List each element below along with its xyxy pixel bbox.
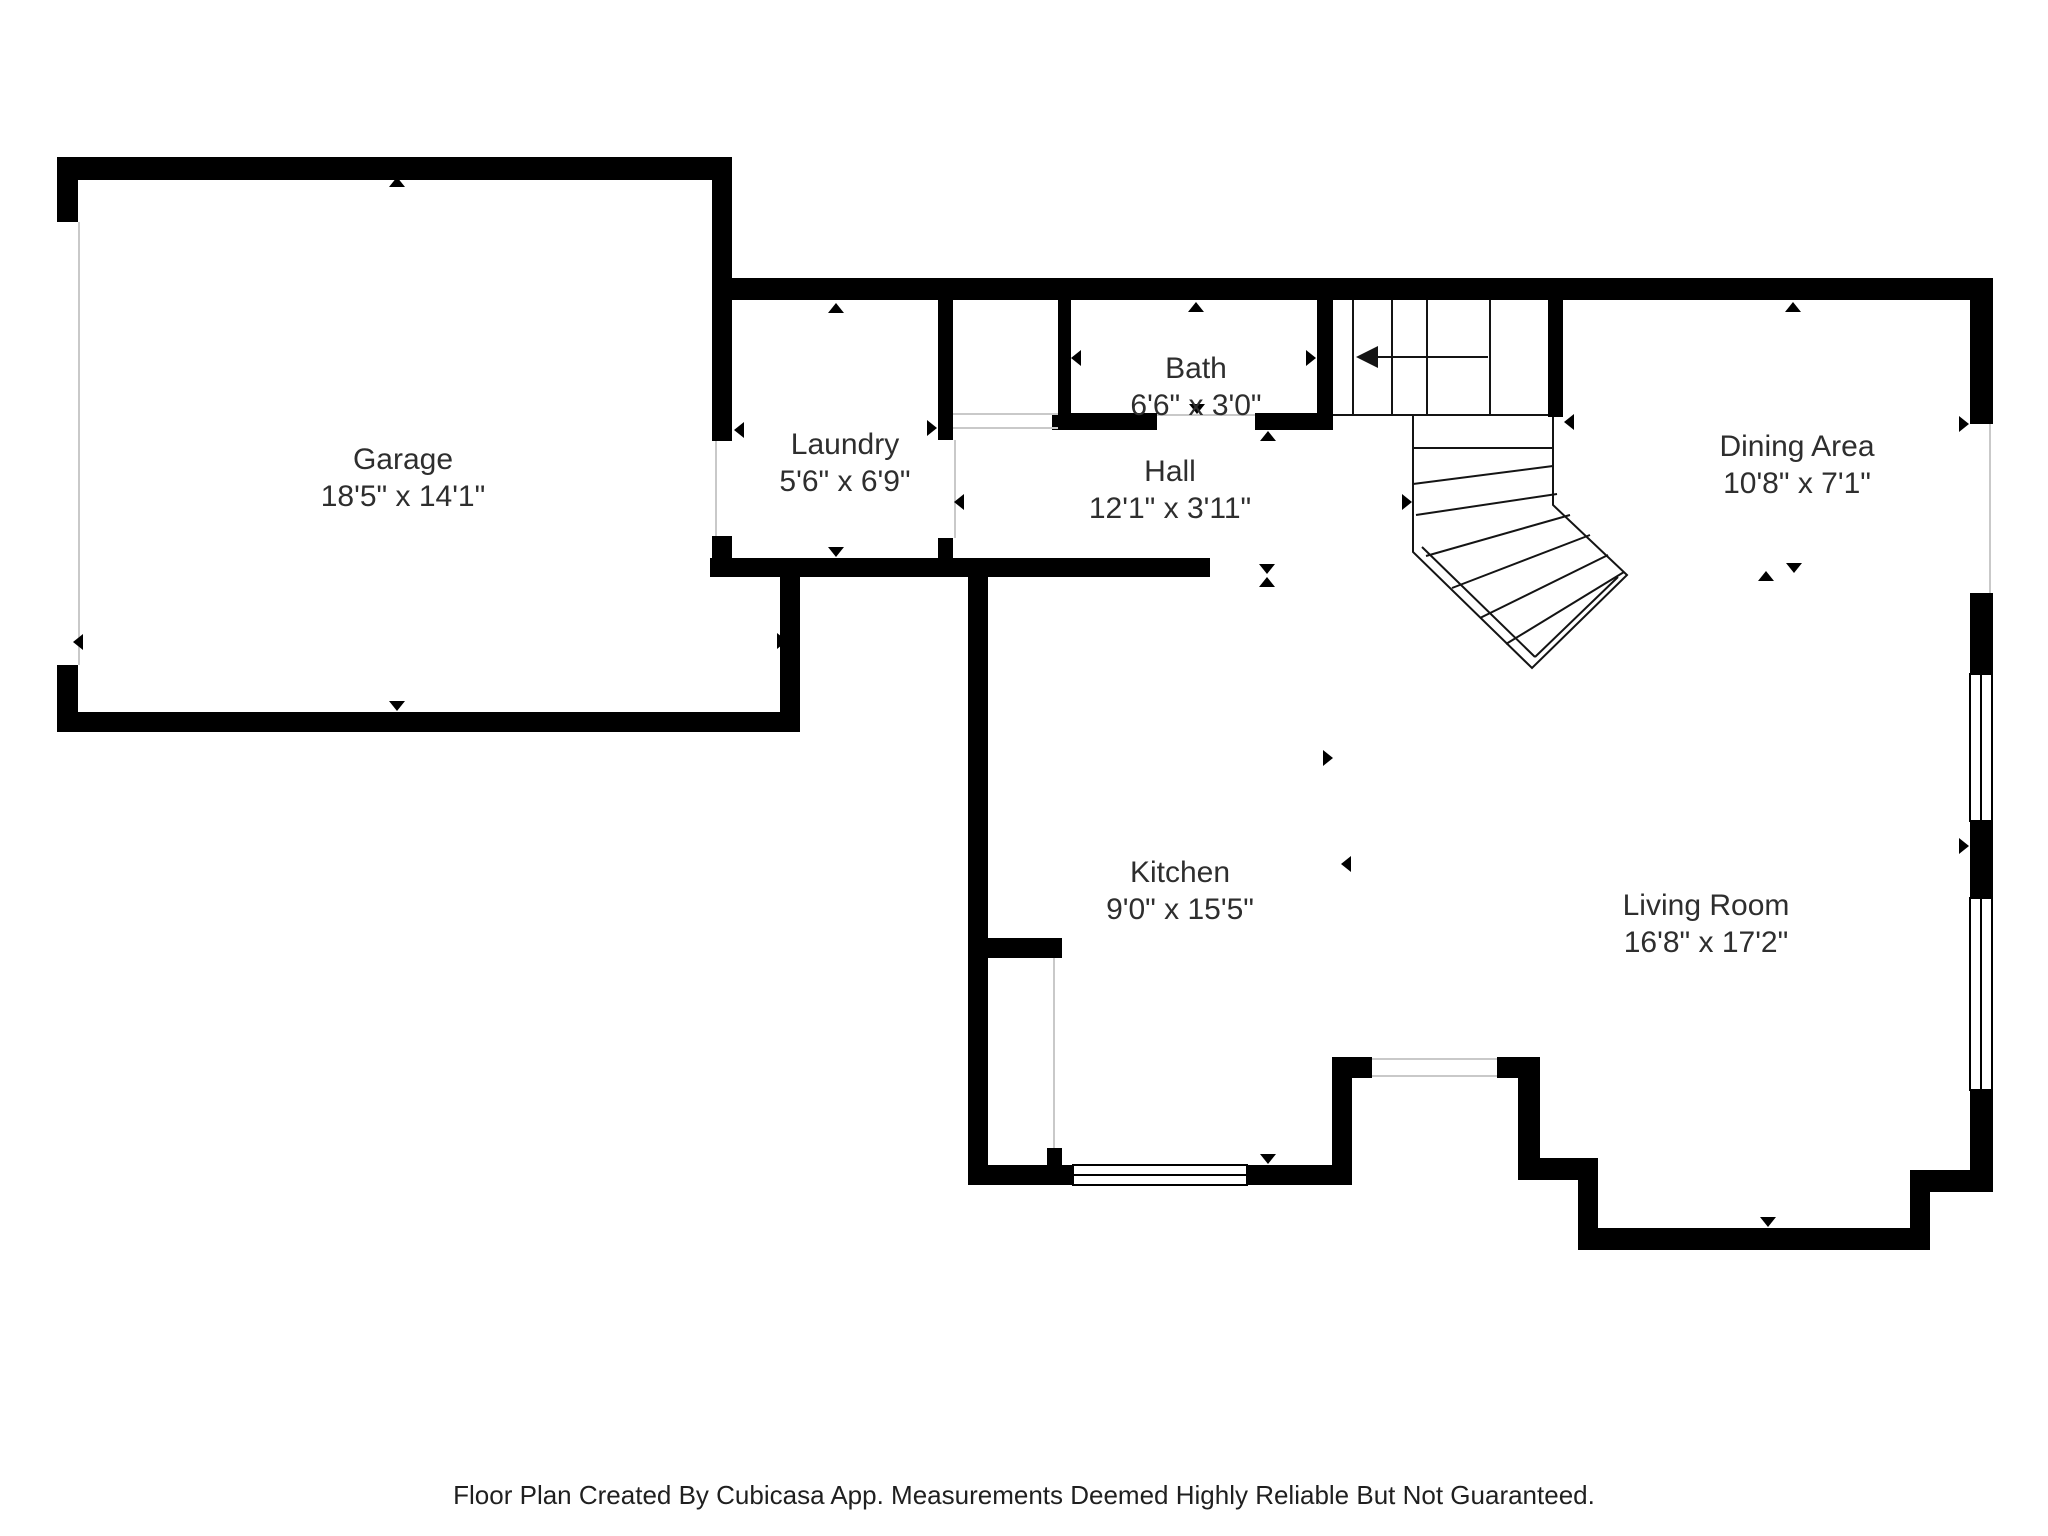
dimension-arrow-icon <box>1260 1154 1276 1164</box>
room-label-garage: Garage 18'5" x 14'1" <box>321 441 486 515</box>
room-name: Laundry <box>791 428 899 461</box>
window-living-right-lower-icon <box>1970 898 1992 1090</box>
wall-kitchen-nook-top <box>988 938 1062 958</box>
dimension-arrow-icon <box>1188 302 1204 312</box>
walls <box>57 157 1993 1250</box>
room-name: Kitchen <box>1130 856 1230 889</box>
dimension-arrow-icon <box>1959 416 1969 432</box>
wall-right-top <box>1970 278 1993 424</box>
room-name: Hall <box>1144 455 1196 488</box>
room-name: Bath <box>1165 352 1227 385</box>
dimension-arrow-icon <box>828 547 844 557</box>
dimension-markers <box>73 177 1969 1227</box>
footer-disclaimer: Floor Plan Created By Cubicasa App. Meas… <box>0 1480 2048 1511</box>
staircase-icon <box>1333 300 1627 668</box>
dimension-arrow-icon <box>1306 350 1316 366</box>
room-label-living-room: Living Room 16'8" x 17'2" <box>1623 887 1790 961</box>
dimension-arrow-icon <box>1758 571 1774 581</box>
dimension-arrow-icon <box>1564 414 1574 430</box>
wall-garage-left-upper-stub <box>57 157 78 222</box>
dimension-arrow-icon <box>1785 302 1801 312</box>
dimension-arrow-icon <box>389 701 405 711</box>
openings <box>79 222 1990 1148</box>
window-living-right-upper-icon <box>1970 674 1992 821</box>
dimension-arrow-icon <box>1341 856 1351 872</box>
room-dimensions: 18'5" x 14'1" <box>321 478 486 515</box>
wall-right-mid <box>1970 593 1993 674</box>
room-label-hall: Hall 12'1" x 3'11" <box>1089 453 1251 527</box>
wall-hall-bottom <box>710 558 1210 577</box>
wall-bath-left <box>1058 300 1071 415</box>
room-label-bath: Bath 6'6" x 3'0" <box>1130 350 1261 424</box>
wall-kitchen-nook-bottom-stub <box>1047 1148 1062 1185</box>
wall-living-bottom <box>1578 1228 1930 1250</box>
wall-bath-bottom-right <box>1255 413 1333 430</box>
dimension-arrow-icon <box>1259 564 1275 574</box>
wall-kitchen-doorway-left-stub <box>1332 1057 1372 1078</box>
stair-direction-arrow-icon <box>1356 346 1488 368</box>
floor-plan-page: Garage 18'5" x 14'1" Laundry 5'6" x 6'9"… <box>0 0 2048 1536</box>
room-name: Garage <box>353 443 453 476</box>
dimension-arrow-icon <box>1071 350 1081 366</box>
dimension-arrow-icon <box>1323 750 1333 766</box>
floor-plan-drawing <box>0 0 2048 1536</box>
wall-right-lower <box>1970 1090 1993 1192</box>
room-name: Living Room <box>1623 889 1790 922</box>
wall-right-between-windows <box>1970 821 1993 898</box>
dimension-arrow-icon <box>1402 494 1412 510</box>
wall-laundry-right-upper <box>938 300 953 440</box>
room-label-kitchen: Kitchen 9'0" x 15'5" <box>1106 854 1254 928</box>
room-label-laundry: Laundry 5'6" x 6'9" <box>779 426 910 500</box>
wall-top-main <box>712 278 1993 300</box>
dimension-arrow-icon <box>1260 431 1276 441</box>
dimension-arrow-icon <box>927 420 937 436</box>
wall-bath-right <box>1317 300 1333 422</box>
dimension-arrow-icon <box>1259 577 1275 587</box>
wall-kitchen-left <box>968 577 988 1185</box>
dimension-arrow-icon <box>1959 838 1969 854</box>
room-dimensions: 10'8" x 7'1" <box>1719 465 1874 502</box>
room-dimensions: 12'1" x 3'11" <box>1089 490 1251 527</box>
wall-garage-kitchen-notch <box>780 577 800 732</box>
dimension-arrow-icon <box>828 303 844 313</box>
dimension-arrow-icon <box>734 422 744 438</box>
wall-garage-bottom <box>57 712 800 732</box>
room-label-dining-area: Dining Area 10'8" x 7'1" <box>1719 428 1874 502</box>
room-dimensions: 6'6" x 3'0" <box>1130 387 1261 424</box>
dimension-arrow-icon <box>1786 563 1802 573</box>
dimension-arrow-icon <box>1760 1217 1776 1227</box>
room-dimensions: 5'6" x 6'9" <box>779 463 910 500</box>
wall-garage-top <box>57 157 732 180</box>
room-dimensions: 16'8" x 17'2" <box>1623 924 1790 961</box>
wall-stair-right <box>1548 300 1563 417</box>
room-dimensions: 9'0" x 15'5" <box>1106 891 1254 928</box>
room-name: Dining Area <box>1719 430 1874 463</box>
window-kitchen-icon <box>1073 1165 1247 1185</box>
